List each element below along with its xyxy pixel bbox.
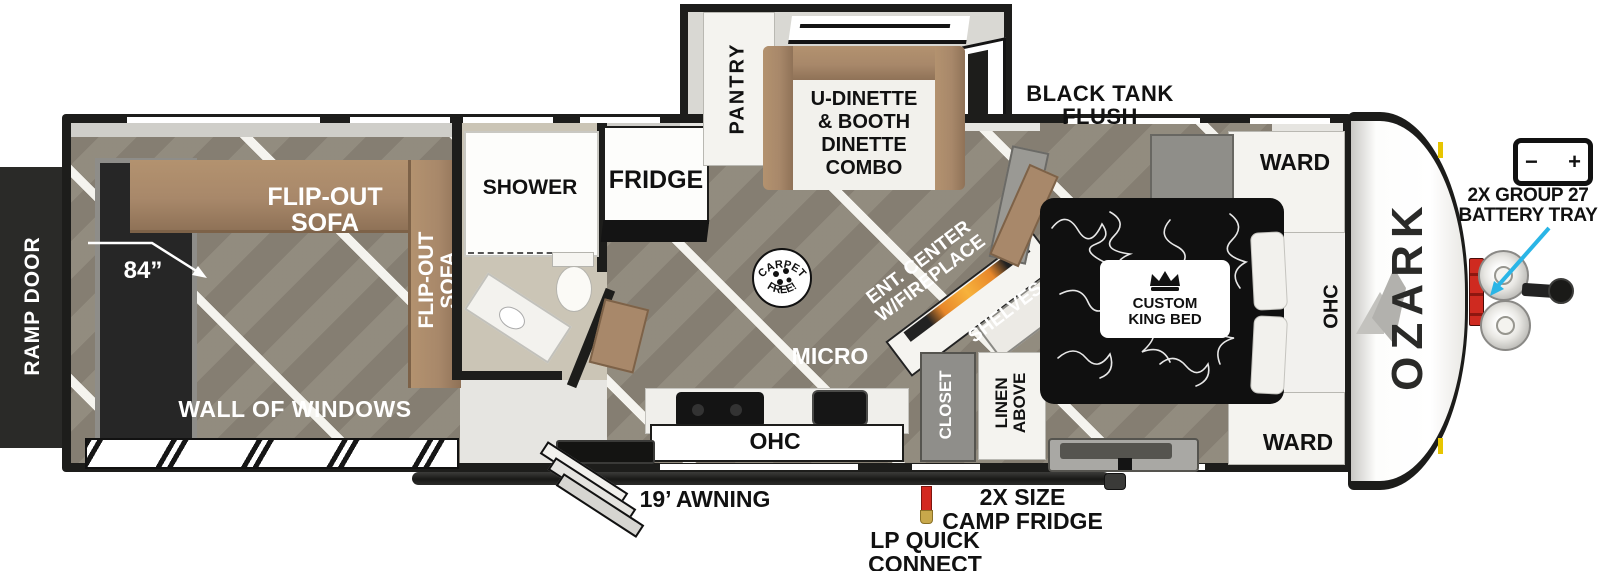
bed-label: CUSTOM KING BED	[1100, 296, 1230, 328]
nose-marker-top	[1438, 142, 1443, 158]
slideout-window-band	[788, 16, 970, 44]
battery-icon: − +	[1513, 138, 1593, 186]
carpet-free-badge: CARPET FREE!	[750, 246, 814, 310]
window-slit	[580, 117, 660, 123]
slideout-side-window-pane	[968, 50, 988, 118]
micro-label: MICRO	[770, 344, 890, 368]
window-slit	[1250, 118, 1330, 124]
camp-fridge-label: 2X SIZE CAMP FRIDGE	[930, 485, 1115, 533]
sofa-dimension-label: 84”	[108, 258, 178, 283]
linen-above-label: LINEN ABOVE	[993, 350, 1029, 456]
rv-floorplan: RAMP DOOR FLIP-OUT SOFA FLIP-OUT SOFA 84…	[0, 0, 1600, 571]
closet-label: CLOSET	[937, 355, 955, 455]
brand-logo-text: OZARK	[1385, 170, 1431, 420]
ward-bottom-label: WARD	[1243, 430, 1353, 454]
bedroom-ohc-label: OHC	[1322, 257, 1343, 357]
awning-label: 19’ AWNING	[630, 487, 780, 511]
window-slit	[463, 117, 553, 123]
propane-tank-bottom-cap	[1496, 316, 1515, 335]
wall-rear-bath	[452, 114, 462, 380]
pantry-label: PANTRY	[728, 39, 749, 139]
kitchen-ohc-label: OHC	[700, 429, 850, 453]
window-slit	[127, 117, 320, 123]
dinette-booth-right	[935, 46, 965, 190]
kitchen-sink	[812, 390, 868, 426]
bed-pillow-top	[1250, 231, 1288, 311]
shower-label: SHOWER	[470, 177, 590, 199]
camp-fridge-tray-inner	[1060, 443, 1172, 459]
fridge-front-panel	[601, 220, 710, 242]
black-tank-flush-label: BLACK TANK FLUSH	[1010, 82, 1190, 128]
cooktop	[676, 392, 764, 428]
bed-pillow-bottom	[1250, 315, 1288, 395]
toilet-bowl	[556, 266, 592, 312]
wall-of-windows-label: WALL OF WINDOWS	[160, 397, 430, 421]
camp-fridge-tray-tab	[1118, 458, 1132, 470]
window-slit	[350, 117, 450, 123]
slideout-window-bar	[800, 24, 951, 28]
lp-quick-connect-label: LP QUICK CONNECT	[850, 528, 1000, 571]
dinette-booth-left	[763, 46, 793, 190]
wall-bath-bottom	[452, 371, 562, 380]
wall-of-windows-band	[85, 438, 459, 469]
battery-minus: −	[1525, 150, 1538, 173]
battery-plus: +	[1568, 150, 1581, 173]
hitch-knob	[1548, 278, 1574, 304]
crown-icon	[1147, 268, 1183, 292]
ward-top-label: WARD	[1240, 150, 1350, 174]
cooktop-burner2	[730, 404, 742, 416]
bedroom-overhead-gray	[1150, 134, 1234, 200]
flip-out-sofa-top-label: FLIP-OUT SOFA	[250, 184, 400, 237]
ramp-door-label: RAMP DOOR	[22, 216, 44, 396]
toilet-tank	[552, 252, 594, 267]
window-slit	[660, 464, 858, 470]
nose-marker-bottom	[1438, 438, 1443, 454]
fridge-label: FRIDGE	[603, 167, 709, 193]
battery-tray-label: 2X GROUP 27 BATTERY TRAY	[1448, 186, 1600, 226]
propane-tank-top-cap	[1494, 266, 1513, 285]
cooktop-burner	[692, 404, 704, 416]
ceiling-band-rear	[71, 123, 452, 137]
dinette-label: U-DINETTE & BOOTH DINETTE COMBO	[790, 88, 938, 180]
window-slit	[912, 464, 980, 470]
